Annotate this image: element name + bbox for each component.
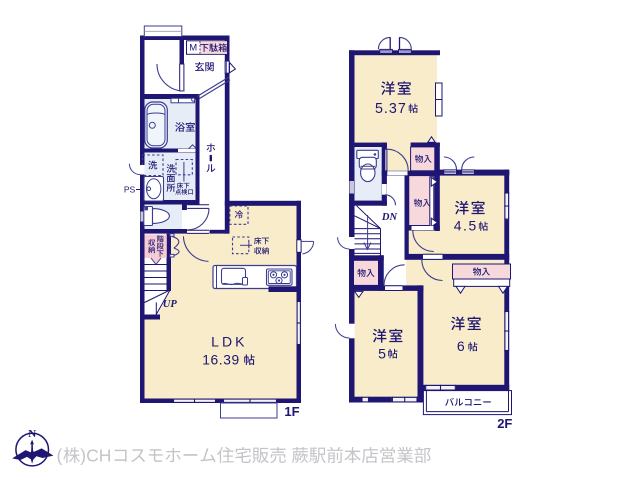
svg-text:M: M [189,43,197,54]
svg-text:UP: UP [163,299,178,310]
svg-text:1F: 1F [284,404,299,419]
svg-text:N: N [28,428,36,440]
svg-text:)CH: )CH [80,445,111,465]
svg-text:5.37: 5.37 [375,101,407,117]
svg-text:5: 5 [378,345,386,361]
svg-text:4.5: 4.5 [454,218,478,234]
svg-text:DN: DN [381,212,398,223]
svg-text:2F: 2F [497,416,512,431]
svg-text:PS: PS [124,185,136,195]
svg-text:(: ( [57,445,63,465]
svg-text:6: 6 [457,338,465,354]
svg-text:16.39: 16.39 [202,353,240,368]
svg-text:LDK: LDK [211,333,247,349]
